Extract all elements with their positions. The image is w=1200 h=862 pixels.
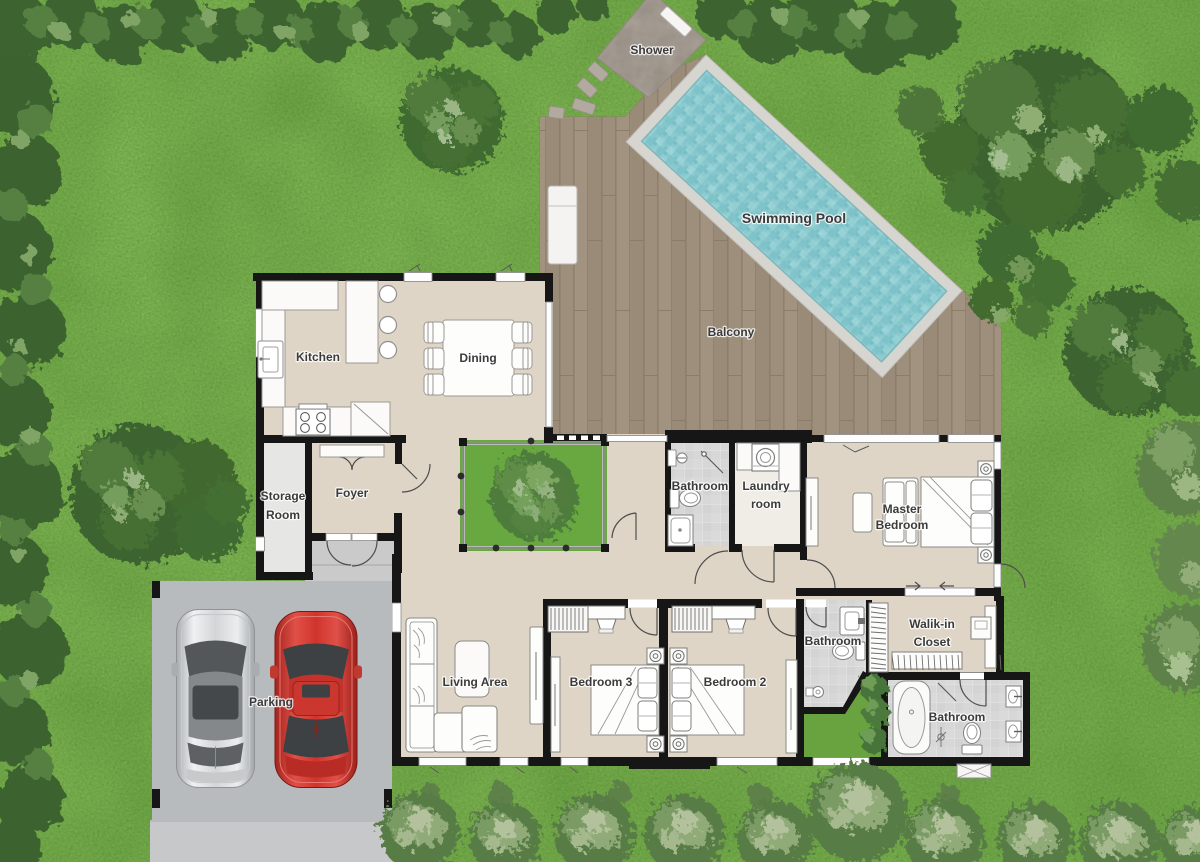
svg-text:Storage: Storage (261, 489, 306, 503)
svg-text:room: room (751, 497, 781, 511)
svg-text:Balcony: Balcony (708, 325, 755, 339)
svg-text:Room: Room (266, 508, 300, 522)
svg-text:Bathroom: Bathroom (929, 710, 986, 724)
svg-text:Laundry: Laundry (742, 479, 790, 493)
svg-text:Living Area: Living Area (443, 675, 508, 689)
svg-text:Dining: Dining (459, 351, 496, 365)
svg-text:Bedroom: Bedroom (876, 518, 929, 532)
svg-text:Closet: Closet (914, 635, 951, 649)
svg-text:Bedroom 3: Bedroom 3 (570, 675, 633, 689)
svg-text:Bedroom 2: Bedroom 2 (704, 675, 767, 689)
svg-text:Parking: Parking (249, 695, 293, 709)
svg-text:Shower: Shower (630, 43, 674, 57)
svg-text:Master: Master (883, 502, 922, 516)
svg-text:Bathroom: Bathroom (672, 479, 729, 493)
svg-text:Swimming Pool: Swimming Pool (742, 210, 846, 226)
svg-text:Bathroom: Bathroom (805, 634, 862, 648)
svg-text:Kitchen: Kitchen (296, 350, 340, 364)
svg-text:Walik-in: Walik-in (909, 617, 955, 631)
svg-text:Foyer: Foyer (336, 486, 369, 500)
